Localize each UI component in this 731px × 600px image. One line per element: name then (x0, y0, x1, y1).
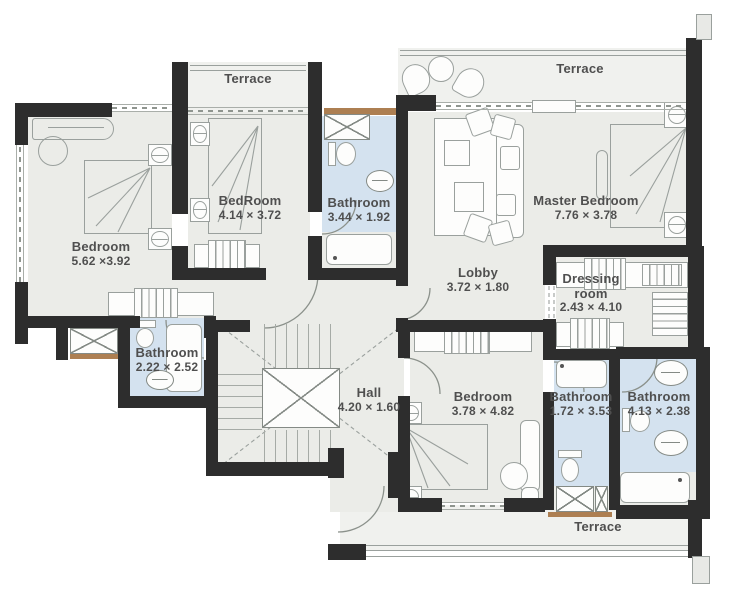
room-label-lobby: Lobby 3.72 × 1.80 (447, 266, 510, 294)
room-dims: 3.78 × 4.82 (452, 405, 515, 419)
wardrobe-hatch (642, 264, 682, 286)
wall-segment (388, 452, 398, 498)
wall-segment (56, 316, 68, 360)
room-name: Hall (338, 386, 401, 401)
cabinet (595, 486, 608, 512)
room-label-terrace-top-right: Terrace (556, 62, 603, 77)
terrace-railing (342, 545, 688, 557)
wall-segment (686, 38, 702, 246)
room-name: Bathroom (136, 346, 199, 361)
room-label-master-bedroom: Master Bedroom 7.76 × 3.78 (533, 194, 638, 222)
terrace-railing (400, 50, 686, 56)
wardrobe-hatch (570, 318, 610, 349)
window (440, 502, 504, 510)
closet-hatch (208, 240, 246, 270)
wall-segment (172, 62, 188, 214)
room-dims: 3.44 × 1.92 (328, 211, 391, 225)
wardrobe-hatch (652, 292, 688, 336)
wall-segment (204, 316, 216, 338)
wall-segment (504, 498, 545, 512)
stair-treads (218, 368, 262, 430)
wall-segment (398, 332, 410, 358)
toilet-tank (328, 142, 336, 166)
room-name: Dressing room (554, 272, 628, 301)
room-name: Bathroom (550, 390, 613, 405)
room-dims: 7.76 × 3.78 (533, 209, 638, 223)
washer (556, 486, 594, 512)
desk (32, 118, 114, 140)
washer (324, 114, 370, 140)
wall-segment (204, 360, 216, 408)
wall-segment (206, 462, 342, 476)
room-name: Master Bedroom (533, 194, 638, 209)
chair (500, 462, 528, 490)
terrace-door (532, 100, 576, 113)
bathtub (326, 234, 392, 265)
closet (70, 328, 118, 354)
room-label-terrace-top-left: Terrace (224, 72, 271, 87)
terrace-table (428, 56, 454, 82)
wall-segment (609, 357, 620, 510)
wall-segment (15, 282, 28, 344)
room-dims: 2.43 × 4.10 (554, 301, 628, 315)
floor-plan: Terrace Terrace Terrace Bedroom 5.62 ×3.… (0, 0, 731, 600)
sink (366, 170, 394, 192)
room-dims: 3.72 × 1.80 (447, 281, 510, 295)
wall-segment (15, 103, 28, 145)
room-name: Terrace (574, 520, 621, 535)
wall-segment (396, 95, 408, 286)
room-label-bedroom-mid: BedRoom 4.14 × 3.72 (219, 194, 282, 222)
chimney (692, 556, 710, 584)
wall-segment (328, 544, 366, 560)
wall-segment (328, 448, 344, 478)
room-dims: 4.20 × 1.60 (338, 401, 401, 415)
wall-segment (118, 316, 130, 408)
chimney (696, 14, 712, 40)
stair-treads (264, 324, 340, 368)
side-table (454, 182, 484, 212)
wall-segment (15, 103, 112, 117)
room-label-bedroom-left: Bedroom 5.62 ×3.92 (71, 240, 130, 268)
drain-dot (678, 478, 682, 482)
toilet (561, 458, 579, 482)
room-name: Lobby (447, 266, 510, 281)
room-name: BedRoom (219, 194, 282, 209)
wall-segment (308, 62, 322, 212)
room-label-bedroom-bottom: Bedroom 3.78 × 4.82 (452, 390, 515, 418)
room-name: Terrace (224, 72, 271, 87)
room-name: Bathroom (328, 196, 391, 211)
wall-segment (688, 500, 702, 558)
nightstand (190, 198, 210, 222)
sofa-cushion (500, 146, 520, 170)
room-dims: 4.13 × 2.38 (628, 405, 691, 419)
sink (654, 360, 688, 386)
side-table (444, 140, 470, 166)
room-label-bathroom-mid-left: Bathroom 2.22 × 2.52 (136, 346, 199, 374)
wall-segment (398, 320, 545, 332)
toilet (336, 142, 356, 166)
room-dims: 5.62 ×3.92 (71, 255, 130, 269)
chair (38, 136, 68, 166)
wall-segment (696, 347, 710, 519)
room-label-dressing-room: Dressing room 2.43 × 4.10 (554, 272, 628, 315)
room-name: Terrace (556, 62, 603, 77)
sofa-cushion (496, 194, 516, 216)
wall-segment (118, 396, 218, 408)
bed (402, 424, 488, 490)
window (112, 104, 172, 112)
wall-segment (616, 347, 708, 359)
wall-segment (688, 246, 704, 350)
wall-segment (398, 498, 442, 512)
nightstand (148, 144, 172, 166)
drain-dot (333, 256, 337, 260)
bed (84, 160, 152, 234)
dresser-hatch (134, 288, 178, 318)
window (188, 107, 308, 115)
stair-void (262, 368, 340, 428)
room-label-terrace-bottom: Terrace (574, 520, 621, 535)
drain-dot (560, 364, 564, 368)
wall-segment (543, 245, 702, 257)
wall-segment (308, 268, 408, 280)
nightstand (190, 122, 210, 146)
desk-line (48, 127, 104, 128)
wall-segment (398, 95, 436, 111)
room-name: Bathroom (628, 390, 691, 405)
room-label-bathroom-top: Bathroom 3.44 × 1.92 (328, 196, 391, 224)
room-dims: 4.14 × 3.72 (219, 209, 282, 223)
room-name: Bedroom (452, 390, 515, 405)
sink (654, 430, 688, 456)
wood-threshold (70, 354, 118, 359)
room-dims: 2.22 × 2.52 (136, 361, 199, 375)
wall-segment (172, 268, 266, 280)
wood-threshold (548, 512, 612, 517)
nightstand (148, 228, 172, 250)
bathtub (620, 472, 690, 503)
room-label-bathroom-bottom-right: Bathroom 4.13 × 2.38 (628, 390, 691, 418)
room-dims: 1.72 × 3.53 (550, 405, 613, 419)
toilet-tank (558, 450, 582, 458)
room-label-hall: Hall 4.20 × 1.60 (338, 386, 401, 414)
room-name: Bedroom (71, 240, 130, 255)
room-label-bathroom-bottom-mid: Bathroom 1.72 × 3.53 (550, 390, 613, 418)
